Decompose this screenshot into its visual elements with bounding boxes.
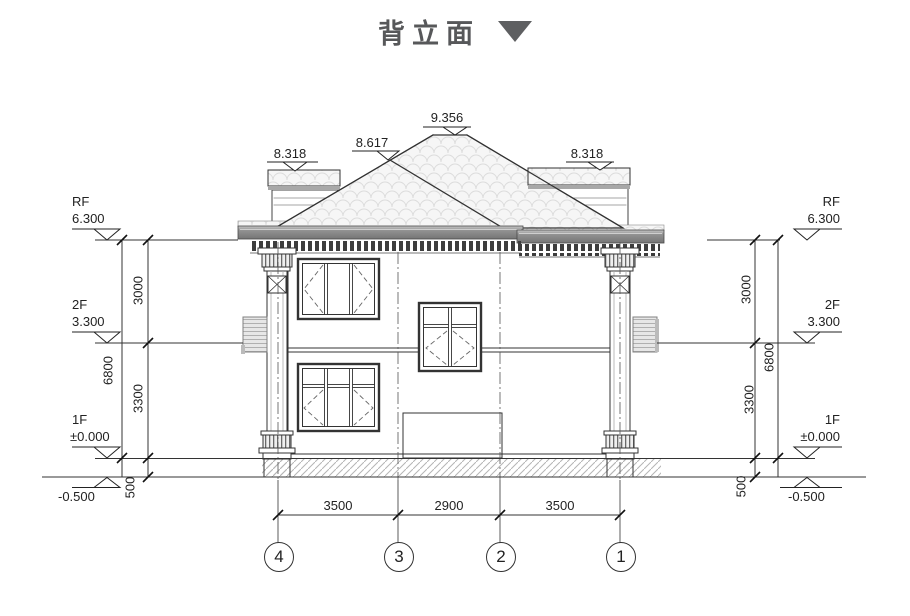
dim-3500-left: 3500 <box>308 499 368 512</box>
f2-label-left: 2F <box>72 298 87 311</box>
walls <box>288 253 628 458</box>
f2-label-right: 2F <box>782 298 840 311</box>
dim-3500-right: 3500 <box>530 499 590 512</box>
plinth-foundation <box>262 459 661 477</box>
dim-2900-middle: 2900 <box>419 499 479 512</box>
f1-value-left: ±0.000 <box>70 430 110 443</box>
left-column <box>258 248 296 459</box>
left-eave-elevation-label: 8.318 <box>264 147 316 160</box>
window-1f-left <box>298 364 379 431</box>
dim-500-right: 500 <box>735 462 748 512</box>
f1-label-left: 1F <box>72 413 87 426</box>
f1-label-right: 1F <box>782 413 840 426</box>
ground-value-right: -0.500 <box>788 490 825 503</box>
right-eave-elevation-label: 8.318 <box>561 147 613 160</box>
ac-unit-left <box>241 317 267 354</box>
dim-3000-right: 3000 <box>740 265 753 315</box>
rf-label-left: RF <box>72 195 89 208</box>
cornice <box>238 226 664 257</box>
dim-6800-right: 6800 <box>763 333 776 383</box>
window-stair-landing <box>419 303 481 371</box>
dim-3300-right: 3300 <box>743 375 756 425</box>
window-2f-left <box>298 259 379 319</box>
f2-value-left: 3.300 <box>72 315 105 328</box>
rf-value-right: 6.300 <box>782 212 840 225</box>
dim-3300-left: 3300 <box>132 374 145 424</box>
mid-ridge-elevation-label: 8.617 <box>346 136 398 149</box>
grid-bubble-1: 1 <box>606 542 636 572</box>
dim-6800-left: 6800 <box>102 346 115 396</box>
dim-3000-left: 3000 <box>132 266 145 316</box>
grid-bubble-2: 2 <box>486 542 516 572</box>
grid-bubble-4: 4 <box>264 542 294 572</box>
f1-value-right: ±0.000 <box>782 430 840 443</box>
peak-elevation-label: 9.356 <box>417 111 477 124</box>
elevation-drawing-canvas: 背立面 <box>0 0 910 616</box>
rf-label-right: RF <box>782 195 840 208</box>
rf-value-left: 6.300 <box>72 212 105 225</box>
ground-value-left: -0.500 <box>58 490 95 503</box>
dim-500-left: 500 <box>124 463 137 513</box>
grid-bubble-3: 3 <box>384 542 414 572</box>
f2-value-right: 3.300 <box>782 315 840 328</box>
ac-unit-right <box>633 317 659 352</box>
